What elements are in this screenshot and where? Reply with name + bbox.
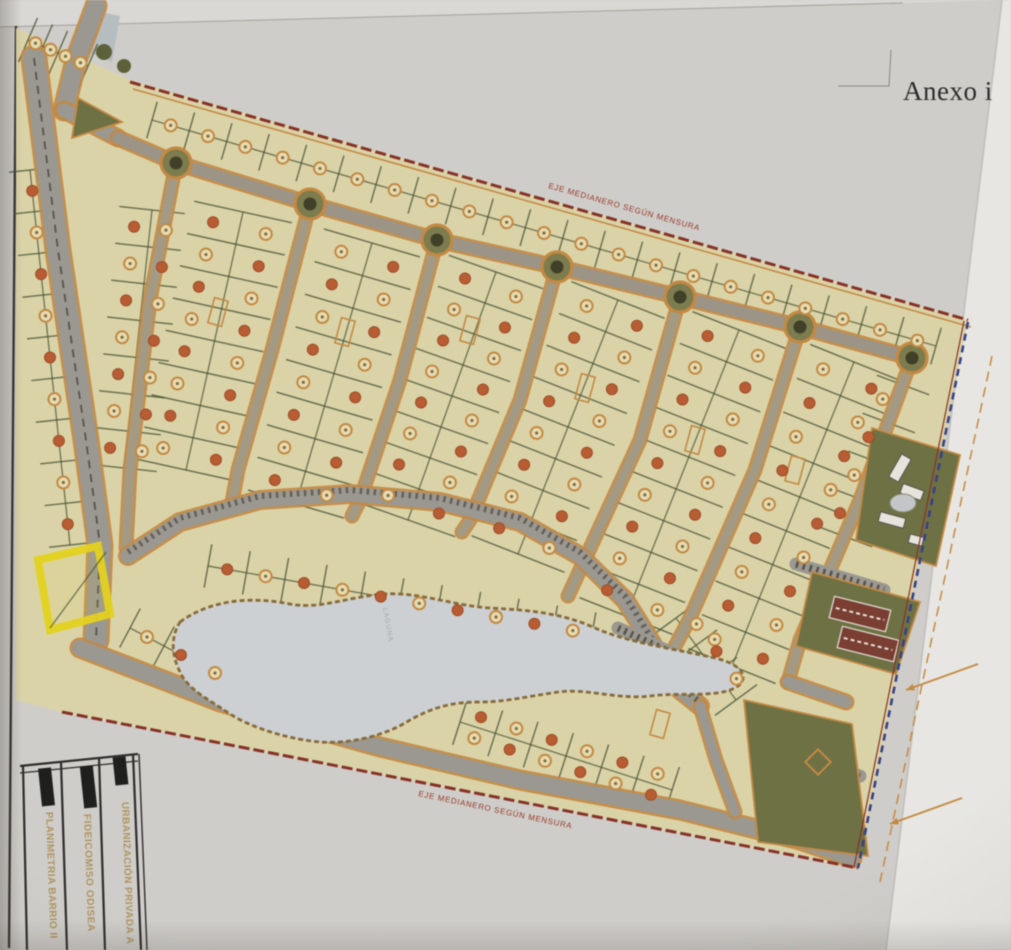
tree-ring-center	[206, 135, 209, 138]
tree-ring-center	[236, 361, 239, 364]
roundabout-center	[304, 198, 317, 211]
tree-solid	[375, 591, 386, 602]
tree-solid	[433, 508, 444, 519]
tree-ring-center	[408, 432, 411, 435]
tree-solid	[307, 344, 318, 355]
tree-solid	[176, 650, 187, 661]
tree-solid	[179, 346, 190, 357]
tree-solid	[148, 335, 159, 346]
roundabout-center	[674, 291, 687, 304]
tree-ring-center	[598, 419, 601, 422]
tree-ring-center	[145, 635, 148, 638]
tree-ring-center	[617, 253, 620, 256]
tree-ring-center	[120, 336, 123, 339]
tree-ring-center	[775, 623, 778, 626]
roundabout-center	[431, 234, 444, 247]
tree-solid	[369, 327, 380, 338]
tree-solid	[556, 511, 567, 522]
tree-ring-center	[693, 366, 696, 369]
tree-ring-center	[264, 232, 267, 235]
tree-ring-center	[735, 677, 738, 680]
tree-solid	[416, 397, 427, 408]
tree-ring-center	[821, 368, 824, 371]
tree-ring-center	[494, 615, 497, 618]
tree-solid	[121, 295, 132, 306]
tree-ring-center	[514, 295, 517, 298]
tree-solid	[452, 605, 463, 616]
tree-ring-center	[325, 494, 328, 497]
tree-solid	[156, 262, 167, 273]
roundabout-center	[170, 157, 183, 170]
tree-ring-center	[148, 376, 151, 379]
tree-solid	[835, 508, 846, 519]
tree-ring-center	[473, 737, 476, 740]
tree-solid	[785, 586, 796, 597]
tree-ring-center	[731, 418, 734, 421]
tree-ring-center	[341, 588, 344, 591]
tree-ring-center	[302, 381, 305, 384]
tree-solid	[544, 396, 555, 407]
tree-solid	[866, 383, 877, 394]
tree-solid	[529, 618, 540, 629]
tree-solid	[476, 712, 487, 723]
tree-ring-center	[580, 242, 583, 245]
tree-ring-center	[64, 55, 67, 58]
tree-solid	[477, 384, 488, 395]
tree-solid	[253, 261, 264, 272]
tree-ring-center	[430, 199, 433, 202]
tree-ring-center	[713, 638, 716, 641]
tree-solid	[863, 432, 874, 443]
tree-solid	[664, 573, 675, 584]
tree-ring-center	[656, 772, 659, 775]
roundabout-center	[906, 352, 919, 365]
tree-solid	[645, 789, 656, 800]
tree-solid	[299, 578, 310, 589]
tree-ring-center	[112, 409, 115, 412]
tree-ring-center	[250, 297, 253, 300]
tree-solid	[53, 435, 64, 446]
tree-solid	[602, 585, 613, 596]
tree-solid	[222, 564, 233, 575]
tree-ring-center	[418, 602, 421, 605]
tree-solid	[140, 409, 151, 420]
entry-shrub	[96, 44, 112, 60]
tree-solid	[711, 646, 722, 657]
tree-ring-center	[213, 671, 216, 674]
tree-ring-center	[176, 382, 179, 385]
tree-ring-center	[452, 308, 455, 311]
scanned-plan-photo: EJE MEDIANERO SEGÚN MENSURA EJE MEDIANER…	[0, 0, 1011, 950]
tree-solid	[606, 384, 617, 395]
tree-ring-center	[62, 481, 65, 484]
tree-solid	[394, 459, 405, 470]
tree-ring-center	[164, 229, 167, 232]
tree-ring-center	[128, 262, 131, 265]
tree-solid	[627, 521, 638, 532]
tree-ring-center	[264, 575, 267, 578]
tree-solid	[839, 451, 850, 462]
tree-ring-center	[430, 370, 433, 373]
tree-solid	[690, 509, 701, 520]
tree-ring-center	[49, 48, 52, 51]
tree-solid	[438, 335, 449, 346]
tree-ring-center	[340, 250, 343, 253]
tree-ring-center	[515, 727, 518, 730]
tree-solid	[208, 217, 219, 228]
tree-ring-center	[53, 398, 56, 401]
tree-ring-center	[505, 221, 508, 224]
tree-ring-center	[542, 231, 545, 234]
tree-ring-center	[585, 750, 588, 753]
tree-ring-center	[916, 339, 919, 342]
tree-ring-center	[448, 481, 451, 484]
tree-ring-center	[571, 629, 574, 632]
tree-ring-center	[681, 545, 684, 548]
tree-ring-center	[190, 317, 193, 320]
tree-solid	[269, 475, 280, 486]
tree-ring-center	[492, 357, 495, 360]
tree-ring-center	[510, 495, 513, 498]
south-amenity	[744, 700, 868, 856]
tree-solid	[504, 744, 515, 755]
tree-ring-center	[156, 302, 159, 305]
tree-ring-center	[573, 483, 576, 486]
tree-solid	[36, 269, 47, 280]
tree-ring-center	[318, 167, 321, 170]
annex-annotation: Anexo i	[903, 76, 993, 106]
tree-ring-center	[729, 285, 732, 288]
tree-ring-center	[654, 264, 657, 267]
tree-ring-center	[281, 156, 284, 159]
tree-solid	[546, 734, 557, 745]
roundabout-center	[794, 321, 807, 334]
tree-solid	[702, 330, 713, 341]
tree-solid	[519, 459, 530, 470]
tree-solid	[288, 409, 299, 420]
amenity-pond	[890, 494, 916, 512]
tree-solid	[45, 352, 56, 363]
tree-ring-center	[740, 570, 743, 573]
tree-ring-center	[204, 253, 207, 256]
plan-drawing: EJE MEDIANERO SEGÚN MENSURA EJE MEDIANER…	[0, 0, 1011, 950]
tree-solid	[652, 458, 663, 469]
tree-ring-center	[841, 317, 844, 320]
tree-ring-center	[623, 356, 626, 359]
tree-solid	[165, 410, 176, 421]
tree-ring-center	[756, 354, 759, 357]
tree-ring-center	[668, 430, 671, 433]
tree-ring-center	[44, 314, 47, 317]
tree-ring-center	[656, 608, 659, 611]
tree-solid	[27, 185, 38, 196]
tree-solid	[499, 322, 510, 333]
tree-ring-center	[468, 210, 471, 213]
tree-solid	[105, 442, 116, 453]
tree-ring-center	[162, 446, 165, 449]
highlight-layer	[38, 546, 110, 630]
tree-ring-center	[706, 481, 709, 484]
tree-ring-center	[881, 397, 884, 400]
tree-solid	[326, 279, 337, 290]
tree-solid	[812, 518, 823, 529]
tree-solid	[723, 600, 734, 611]
tree-solid	[113, 369, 124, 380]
tree-solid	[210, 454, 221, 465]
tree-ring-center	[321, 315, 324, 318]
tree-solid	[460, 273, 471, 284]
tree-ring-center	[614, 782, 617, 785]
tree-ring-center	[344, 428, 347, 431]
tree-ring-center	[356, 178, 359, 181]
tree-ring-center	[169, 124, 172, 127]
tree-solid	[631, 320, 642, 331]
tree-ring-center	[794, 435, 797, 438]
tree-ring-center	[393, 188, 396, 191]
tree-ring-center	[767, 503, 770, 506]
tree-solid	[388, 261, 399, 272]
tree-solid	[129, 221, 140, 232]
tree-ring-center	[470, 419, 473, 422]
tree-solid	[225, 390, 236, 401]
tree-ring-center	[283, 446, 286, 449]
tree-ring-center	[829, 488, 832, 491]
tree-solid	[777, 465, 788, 476]
tree-ring-center	[382, 298, 385, 301]
tree-ring-center	[548, 546, 551, 549]
tree-ring-center	[643, 493, 646, 496]
tree-solid	[350, 392, 361, 403]
entry-shrub	[117, 59, 131, 73]
tree-ring-center	[79, 61, 82, 64]
tree-ring-center	[221, 426, 224, 429]
tree-ring-center	[244, 145, 247, 148]
tree-ring-center	[692, 274, 695, 277]
tree-ring-center	[802, 556, 805, 559]
tree-ring-center	[585, 304, 588, 307]
roundabout-center	[551, 261, 564, 274]
tree-solid	[331, 457, 342, 468]
tree-ring-center	[618, 557, 621, 560]
tree-ring-center	[856, 421, 859, 424]
tree-ring-center	[386, 494, 389, 497]
tree-solid	[677, 394, 688, 405]
tree-solid	[575, 767, 586, 778]
tree-solid	[455, 446, 466, 457]
tree-solid	[757, 653, 768, 664]
tree-solid	[569, 332, 580, 343]
highlight-square	[38, 546, 110, 630]
tree-ring-center	[34, 42, 37, 45]
tree-ring-center	[804, 307, 807, 310]
tree-solid	[617, 757, 628, 768]
tree-ring-center	[878, 328, 881, 331]
tree-solid	[804, 397, 815, 408]
tree-ring-center	[535, 431, 538, 434]
tree-solid	[750, 533, 761, 544]
tree-ring-center	[543, 759, 546, 762]
tree-ring-center	[35, 231, 38, 234]
tree-solid	[62, 519, 73, 530]
tree-solid	[715, 446, 726, 457]
tree-ring-center	[363, 363, 366, 366]
tree-ring-center	[853, 473, 856, 476]
tree-ring-center	[560, 368, 563, 371]
tree-solid	[239, 325, 250, 336]
tree-solid	[740, 382, 751, 393]
tree-solid	[193, 281, 204, 292]
tree-ring-center	[695, 622, 698, 625]
tree-ring-center	[140, 450, 143, 453]
tree-solid	[581, 447, 592, 458]
tree-solid	[494, 523, 505, 534]
tree-ring-center	[766, 296, 769, 299]
